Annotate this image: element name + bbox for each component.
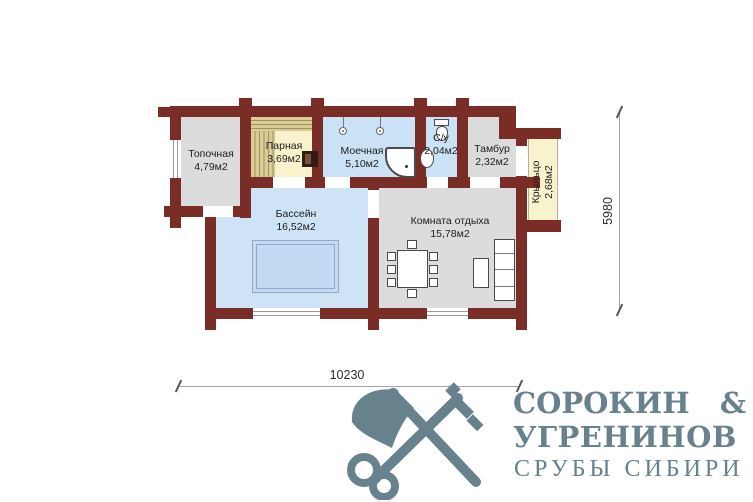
- chair: [429, 278, 438, 287]
- sauna-bench-top: [251, 117, 312, 131]
- room-name: Топочная: [173, 148, 249, 161]
- logo-line-3: СРУБЫ СИБИРИ: [514, 456, 747, 482]
- door-topochnaya: [203, 206, 233, 217]
- label-su: С/у 2,04м2: [417, 132, 465, 158]
- label-bassein: Бассейн 16,52м2: [256, 208, 336, 234]
- logo-line-1: СОРОКИН &: [513, 388, 746, 418]
- pool-basin: [252, 240, 339, 293]
- chair: [407, 240, 417, 249]
- room-area: 15,78м2: [398, 228, 502, 241]
- log-end-3: [414, 98, 427, 106]
- chair: [387, 265, 396, 274]
- shower-head-icon: [376, 127, 384, 135]
- room-area: 3,69м2: [256, 153, 312, 166]
- room-area: 16,52м2: [256, 221, 336, 234]
- shower-head-icon: [339, 127, 347, 135]
- shower-drain: [405, 165, 408, 168]
- wall-porch-top: [499, 128, 561, 139]
- room-area: 5,10м2: [327, 158, 397, 171]
- dimension-height-value: 5980: [601, 191, 615, 231]
- room-name: Парная: [256, 140, 312, 153]
- wall-parnaya-moechnaya: [312, 106, 323, 188]
- logo-ampersand: &: [720, 388, 746, 418]
- chair: [429, 252, 438, 261]
- pool-basin-inner: [256, 244, 335, 289]
- log-end-1: [239, 98, 252, 106]
- room-area: 2,32м2: [461, 156, 523, 169]
- chair: [407, 289, 417, 298]
- wall-porch-bottom-log: [516, 220, 561, 232]
- dimension-tick: [616, 304, 623, 317]
- chair: [387, 278, 396, 287]
- wall-divider-lower: [368, 218, 379, 330]
- wall-mid-seg5: [500, 177, 527, 188]
- room-name: Крыльцо: [530, 143, 543, 221]
- window-pool-bottom: [253, 308, 320, 319]
- company-logo: СОРОКИН & УГРЕНИНОВ СРУБЫ СИБИРИ: [338, 382, 750, 500]
- room-area: 4,79м2: [173, 161, 249, 174]
- room-name: С/у: [417, 132, 465, 145]
- wall-divider-upper: [368, 177, 379, 190]
- dimension-line-height: [619, 112, 620, 310]
- room-name: Бассейн: [256, 208, 336, 221]
- room-name: Тамбур: [461, 143, 523, 156]
- label-tambur: Тамбур 2,32м2: [461, 143, 523, 169]
- log-end-4: [456, 98, 469, 106]
- room-name: Моечная: [327, 145, 397, 158]
- room-pool-area-left: [216, 206, 251, 308]
- sofa: [494, 239, 515, 301]
- label-parnaya: Парная 3,69м2: [256, 140, 312, 166]
- axe-and-key-logo-icon: [338, 382, 510, 500]
- label-moechnaya: Моечная 5,10м2: [327, 145, 397, 171]
- dining-table: [397, 250, 428, 288]
- wall-left-corner-log: [158, 107, 170, 117]
- window-komnata-bottom: [427, 308, 468, 319]
- log-end-2: [311, 98, 324, 106]
- dimension-width-value: 10230: [317, 368, 377, 382]
- label-topochnaya: Топочная 4,79м2: [173, 148, 249, 174]
- label-kryltso: Крыльцо 2,68м2: [530, 143, 556, 221]
- chair: [387, 252, 396, 261]
- room-area: 2,04м2: [417, 145, 465, 158]
- shower-pipe-2: [380, 117, 381, 127]
- floor-plan-page: Топочная 4,79м2 Парная 3,69м2 Моечная 5,…: [0, 0, 753, 502]
- shower-nozzle: [342, 130, 344, 132]
- toilet-tank-icon: [434, 119, 449, 126]
- cabinet: [473, 258, 489, 288]
- label-komnata-otdyha: Комната отдыха 15,78м2: [398, 215, 502, 241]
- shower-nozzle: [379, 130, 381, 132]
- logo-line-2: УГРЕНИНОВ: [513, 422, 746, 452]
- room-area: 2,68м2: [543, 143, 556, 221]
- logo-name-part: СОРОКИН: [513, 388, 690, 418]
- room-name: Комната отдыха: [398, 215, 502, 228]
- shower-pipe-1: [343, 117, 344, 127]
- chair: [429, 265, 438, 274]
